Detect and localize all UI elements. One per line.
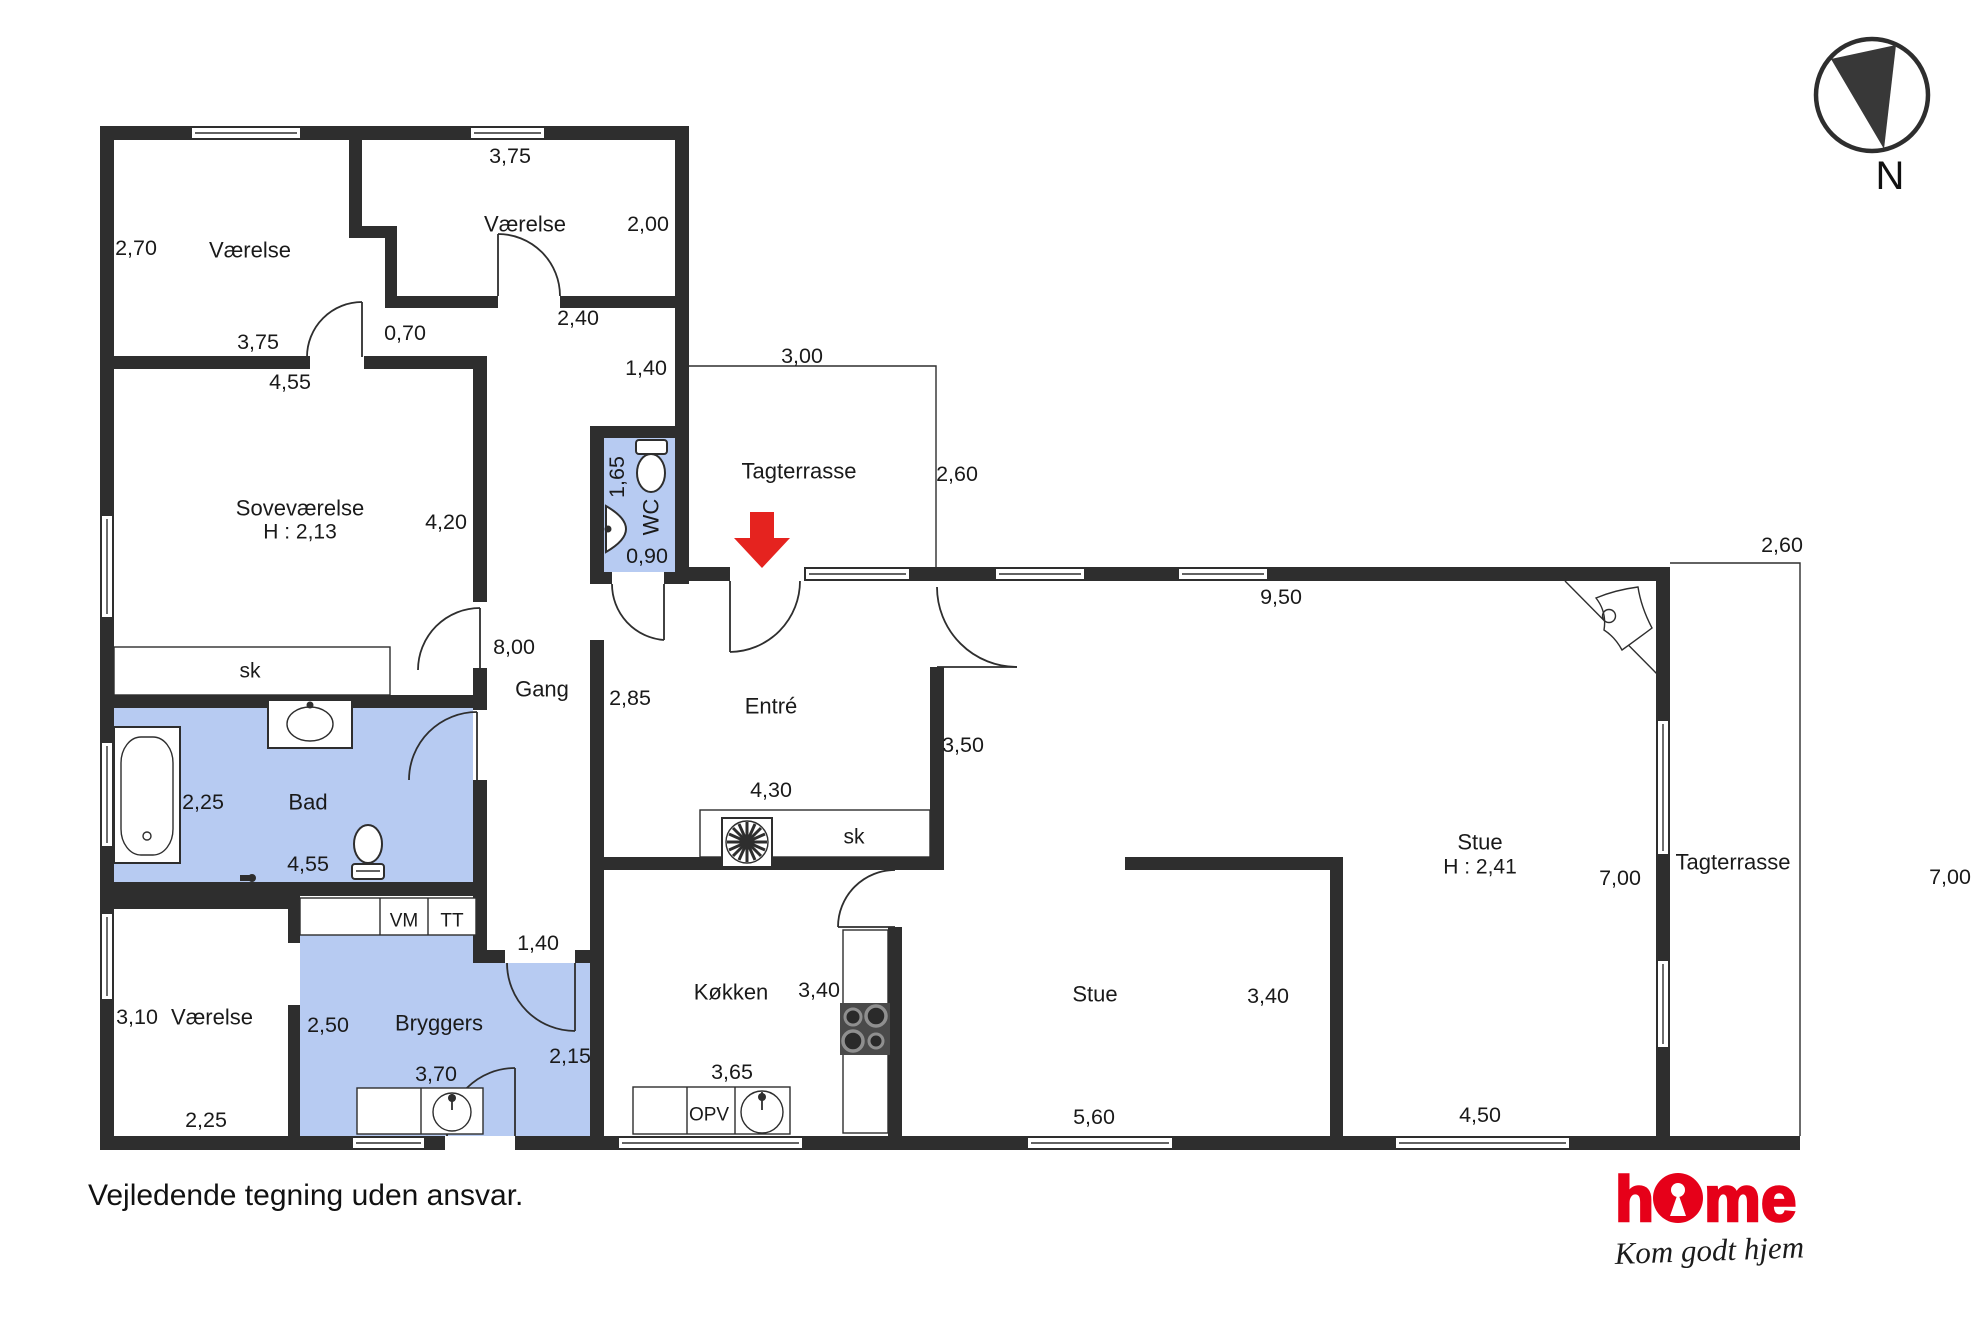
door-vaerelse1 <box>307 302 362 357</box>
dim-stue-lower-width: 5,60 <box>1073 1105 1115 1129</box>
dim-koekken-width: 3,65 <box>711 1060 753 1084</box>
logo-letter-h: h <box>1615 1163 1654 1235</box>
stove-icon <box>840 930 890 1133</box>
room-bryggers: Bryggers <box>395 1011 483 1036</box>
floorplan-page: N 2,70Værelse3,750,703,75Værelse2,002,40… <box>0 0 1984 1323</box>
logo-tagline: Kom godt hjem <box>1613 1229 1805 1271</box>
toilet-bad-icon <box>352 825 384 879</box>
door-sovevaerelse <box>418 608 480 670</box>
room-wc: WC <box>639 499 664 536</box>
window <box>191 127 301 139</box>
dim-tagterrasse-right-depth: 7,00 <box>1929 865 1971 889</box>
window <box>618 1137 803 1149</box>
room-sovevaerelse: Soveværelse <box>236 496 364 521</box>
door-entre-stue <box>937 587 1017 667</box>
dim-tagterrasse-top-depth: 2,60 <box>936 462 978 486</box>
home-logo: h me Kom godt hjem <box>1613 1163 1805 1271</box>
dim-tagterrasse-top-width: 3,00 <box>781 344 823 368</box>
dim-wc-width: 0,90 <box>626 544 668 568</box>
window <box>1395 1137 1570 1149</box>
door-wc <box>612 584 664 640</box>
dim-vaerelse3-width: 2,25 <box>185 1108 227 1132</box>
shower-tap-icon <box>240 874 256 882</box>
closet-entre: sk <box>844 826 866 849</box>
window <box>101 742 113 847</box>
dim-corridor-top: 2,40 <box>557 306 599 330</box>
logo-letters-me: me <box>1704 1163 1797 1235</box>
dim-entre-west: 2,85 <box>609 686 651 710</box>
bathtub-icon <box>114 727 180 863</box>
dim-bad-width: 4,55 <box>287 852 329 876</box>
dim-stue-top: 9,50 <box>1260 585 1302 609</box>
disclaimer-text: Vejledende tegning uden ansvar. <box>88 1179 523 1212</box>
sink-bad-icon <box>268 700 352 748</box>
dim-bryggers-left: 2,50 <box>307 1013 349 1037</box>
dim-sovevaerelse-height: 4,20 <box>425 510 467 534</box>
dim-stue-lower-depth: 3,40 <box>1247 984 1289 1008</box>
closet-sovevaerelse: sk <box>240 660 262 683</box>
window <box>352 1137 425 1149</box>
dim-vaerelse1-height: 2,70 <box>115 236 157 260</box>
appliance-tt: TT <box>440 911 464 932</box>
room-tagterrasse-top: Tagterrasse <box>742 459 857 484</box>
room-vaerelse-2: Værelse <box>484 212 566 237</box>
ceiling-sovevaerelse: H : 2,13 <box>263 521 337 544</box>
room-vaerelse-1: Værelse <box>209 238 291 263</box>
window <box>101 515 113 618</box>
window <box>1657 960 1669 1048</box>
compass-label: N <box>1876 154 1905 198</box>
window <box>805 568 910 580</box>
dim-stue-east: 7,00 <box>1599 866 1641 890</box>
ceiling-stue: H : 2,41 <box>1443 856 1517 879</box>
room-stue-main: Stue <box>1457 830 1502 855</box>
door-vaerelse2 <box>498 234 560 296</box>
window <box>470 127 545 139</box>
window <box>1657 720 1669 855</box>
floorplan-svg: N 2,70Værelse3,750,703,75Værelse2,002,40… <box>0 0 1984 1323</box>
window <box>1027 1137 1173 1149</box>
dim-entre-width: 4,30 <box>750 778 792 802</box>
dim-gang-length: 8,00 <box>493 635 535 659</box>
appliance-vm: VM <box>390 911 419 932</box>
dim-vaerelse2-width: 3,75 <box>489 144 531 168</box>
room-stue-lower: Stue <box>1072 982 1117 1007</box>
room-gang: Gang <box>515 677 569 702</box>
dim-wc-depth: 1,65 <box>605 456 629 498</box>
dim-bryggers-right: 2,15 <box>549 1044 591 1068</box>
door-entrance <box>730 581 800 652</box>
dim-tagterrasse-right-width: 2,60 <box>1761 533 1803 557</box>
room-koekken: Køkken <box>694 980 769 1005</box>
compass-icon: N <box>1816 39 1928 198</box>
dim-bryggers-width: 3,70 <box>415 1062 457 1086</box>
dim-bad-height: 2,25 <box>182 790 224 814</box>
dim-gang-end: 1,40 <box>517 931 559 955</box>
dim-passage: 0,70 <box>384 321 426 345</box>
room-bad: Bad <box>288 790 327 815</box>
dim-koekken-height: 3,40 <box>798 978 840 1002</box>
dim-vaerelse2-height: 2,00 <box>627 212 669 236</box>
room-vaerelse-3: Værelse <box>171 1005 253 1030</box>
appliance-opv: OPV <box>689 1105 729 1126</box>
entrance-arrow-icon <box>734 512 790 568</box>
window <box>101 913 113 1000</box>
dim-vaerelse1-width: 3,75 <box>237 330 279 354</box>
toilet-wc-icon <box>636 440 667 492</box>
fan-icon <box>722 818 772 867</box>
window <box>1178 568 1268 580</box>
dim-corridor-right: 1,40 <box>625 356 667 380</box>
door-koekken <box>838 870 895 927</box>
room-tagterrasse-right: Tagterrasse <box>1676 850 1791 875</box>
dim-stue-main-width: 4,50 <box>1459 1103 1501 1127</box>
room-entre: Entré <box>745 694 798 719</box>
dim-vaerelse3-height: 3,10 <box>116 1005 158 1029</box>
dim-entre-east: 3,50 <box>942 733 984 757</box>
window <box>995 568 1085 580</box>
fireplace-icon <box>1565 581 1659 676</box>
sink-bryggers-icon <box>357 1088 483 1134</box>
dim-sovevaerelse-width: 4,55 <box>269 370 311 394</box>
